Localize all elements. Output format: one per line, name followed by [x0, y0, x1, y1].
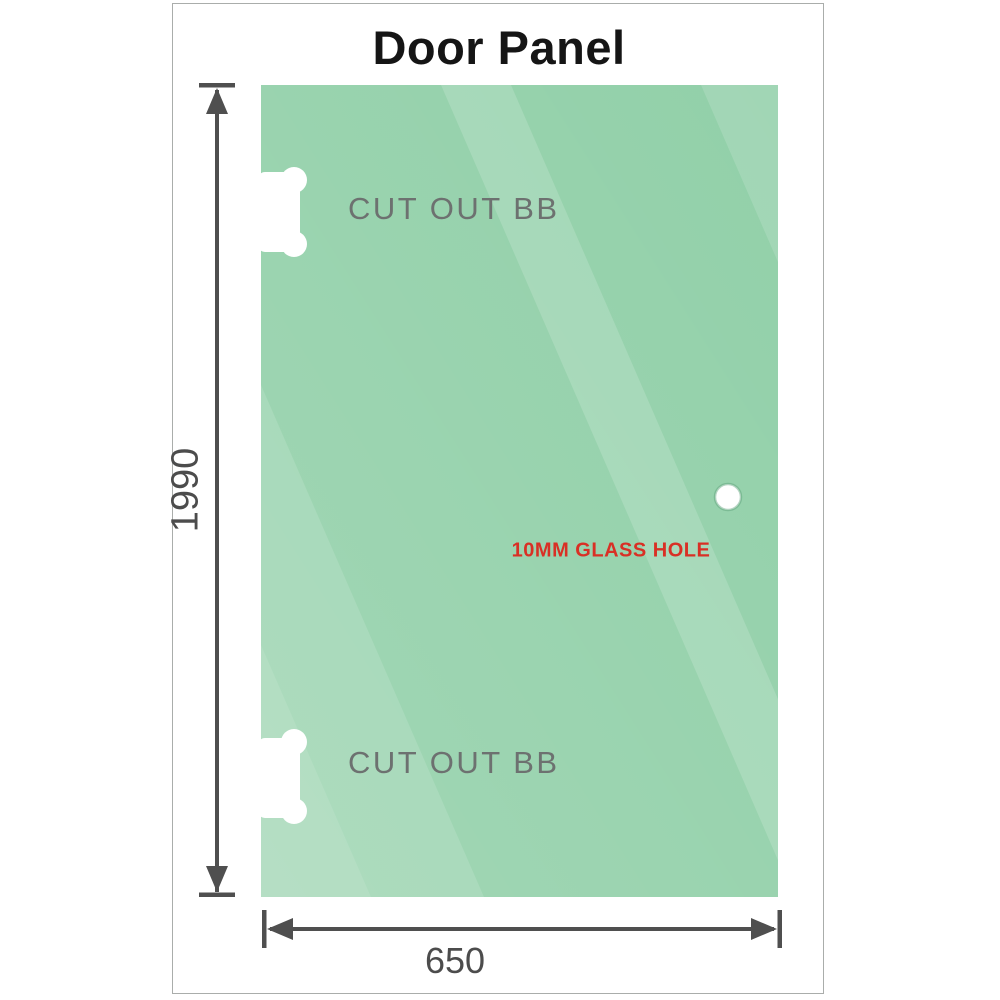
door-panel-diagram: Door Panel — [0, 0, 1000, 1000]
dimension-shaft — [270, 927, 774, 931]
glass-hole — [715, 484, 741, 510]
dimension-tick-right — [778, 910, 783, 948]
cutout-top-label: CUT OUT BB — [348, 191, 560, 227]
dimension-shaft — [215, 90, 219, 892]
cutout-bottom-label: CUT OUT BB — [348, 745, 560, 781]
height-dimension-label: 1990 — [165, 448, 208, 533]
diagram-title: Door Panel — [172, 20, 826, 75]
glass-hole-label: 10MM GLASS HOLE — [512, 540, 711, 563]
arrow-down-icon — [206, 866, 228, 892]
arrow-right-icon — [751, 918, 777, 940]
dimension-cap-bottom — [199, 893, 235, 898]
dimension-tick-left — [262, 910, 267, 948]
width-dimension-label: 650 — [425, 940, 485, 982]
dimension-cap-top — [199, 83, 235, 88]
width-dimension-line — [260, 908, 784, 952]
